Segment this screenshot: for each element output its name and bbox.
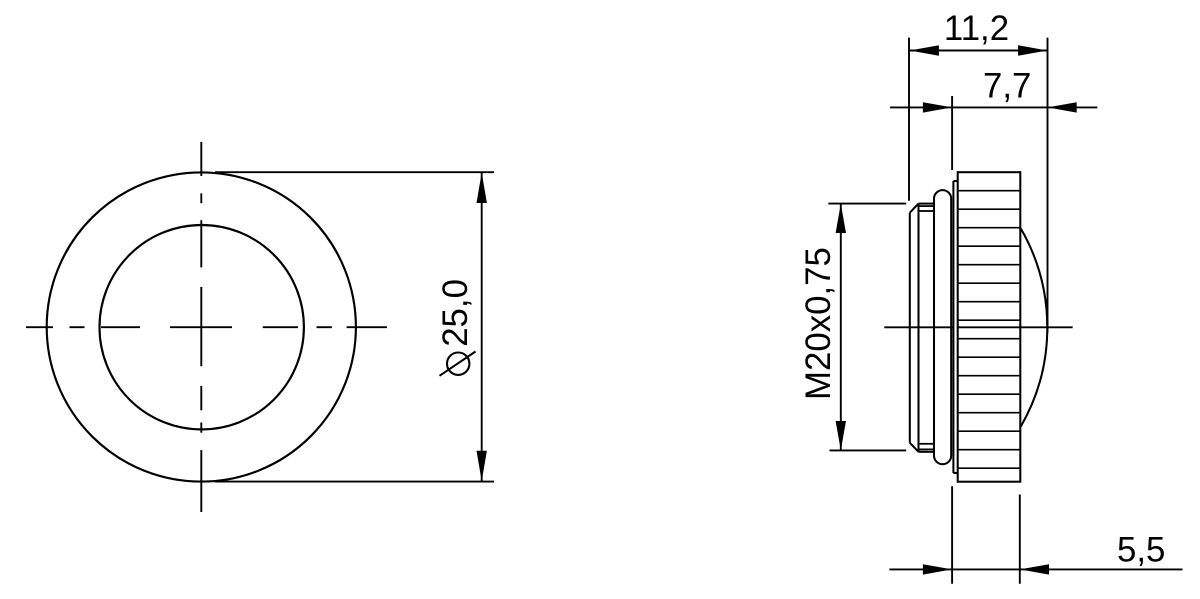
svg-text:7,7: 7,7: [983, 67, 1031, 106]
svg-text:25,0: 25,0: [436, 279, 475, 347]
svg-text:5,5: 5,5: [1117, 531, 1165, 570]
svg-text:M20x0,75: M20x0,75: [799, 247, 838, 400]
svg-text:11,2: 11,2: [944, 9, 1009, 48]
